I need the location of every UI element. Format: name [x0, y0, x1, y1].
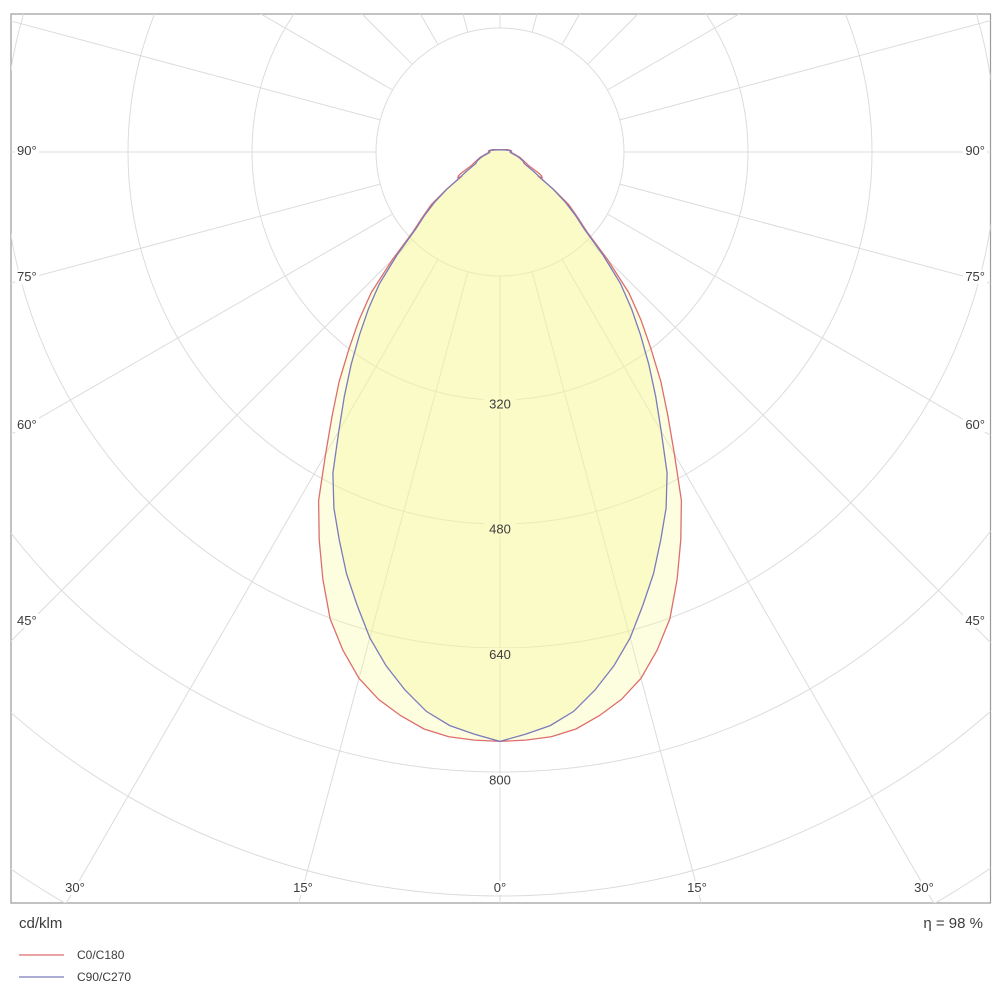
svg-text:320: 320	[489, 397, 511, 412]
svg-text:45°: 45°	[965, 613, 985, 628]
svg-text:60°: 60°	[965, 417, 985, 432]
svg-text:75°: 75°	[965, 269, 985, 284]
svg-text:45°: 45°	[17, 613, 37, 628]
svg-text:C0/C180: C0/C180	[77, 948, 125, 962]
svg-text:60°: 60°	[17, 417, 37, 432]
svg-text:30°: 30°	[65, 880, 85, 895]
svg-text:30°: 30°	[914, 880, 934, 895]
svg-text:0°: 0°	[494, 880, 506, 895]
svg-text:C90/C270: C90/C270	[77, 970, 131, 984]
svg-text:480: 480	[489, 522, 511, 537]
svg-text:η = 98 %: η = 98 %	[923, 915, 983, 932]
svg-text:75°: 75°	[17, 269, 37, 284]
svg-text:90°: 90°	[17, 143, 37, 158]
svg-text:640: 640	[489, 647, 511, 662]
svg-text:cd/klm: cd/klm	[19, 915, 62, 932]
svg-text:15°: 15°	[687, 880, 707, 895]
svg-text:15°: 15°	[293, 880, 313, 895]
svg-text:90°: 90°	[965, 143, 985, 158]
svg-text:800: 800	[489, 773, 511, 788]
